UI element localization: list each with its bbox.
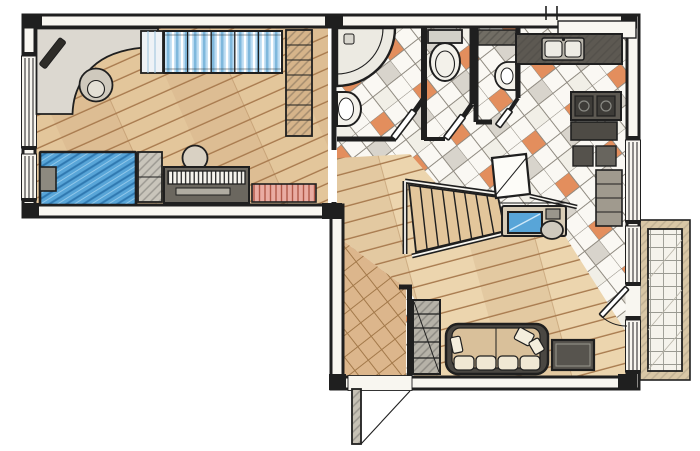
utility-shelf	[478, 30, 516, 45]
utility-washbasin	[495, 62, 516, 90]
cabinet-by-bed	[138, 152, 162, 202]
piano-keys	[168, 171, 245, 184]
desk-chair	[541, 221, 563, 239]
glass-door-wardrobe	[164, 31, 282, 73]
floor-plan-canvas	[0, 0, 700, 451]
dark-rug	[552, 340, 594, 370]
side-cabinet	[141, 31, 163, 73]
living-window-upper	[626, 226, 641, 286]
double-bed	[40, 152, 136, 205]
bedside-shelf	[40, 167, 56, 191]
entrance-door	[348, 376, 412, 445]
kitchen-side-table	[596, 170, 622, 226]
bedroom-window-upper	[22, 52, 37, 150]
kitchen-lower-counter	[571, 122, 617, 140]
task-chair	[80, 69, 113, 102]
entry-corridor	[413, 300, 440, 374]
floor-plan	[0, 0, 700, 451]
bedroom-radiator	[252, 184, 316, 202]
wall-pier	[618, 374, 637, 390]
kitchen-appliance-b	[596, 146, 616, 166]
room-wc	[428, 30, 462, 81]
kitchen-counter-top	[516, 34, 622, 64]
bedroom-window-lower	[22, 154, 37, 202]
wall-pier	[329, 374, 346, 390]
hall-desk	[500, 203, 570, 239]
kitchen-stove	[571, 92, 621, 120]
kitchen-appliance-a	[573, 146, 593, 166]
wall-pier	[22, 14, 42, 29]
bookshelf	[286, 30, 312, 136]
balcony	[640, 220, 690, 380]
entry-shelving-unit	[413, 300, 440, 374]
kitchen-sink	[542, 38, 584, 60]
toilet	[428, 30, 462, 81]
stair-landing	[492, 154, 530, 198]
living-window-lower	[626, 316, 641, 374]
sofa	[446, 324, 548, 374]
kitchen-window	[626, 136, 641, 224]
wall-pier	[22, 203, 39, 218]
bathroom-washbasin	[337, 92, 361, 126]
entrance-door-swing	[361, 391, 410, 444]
